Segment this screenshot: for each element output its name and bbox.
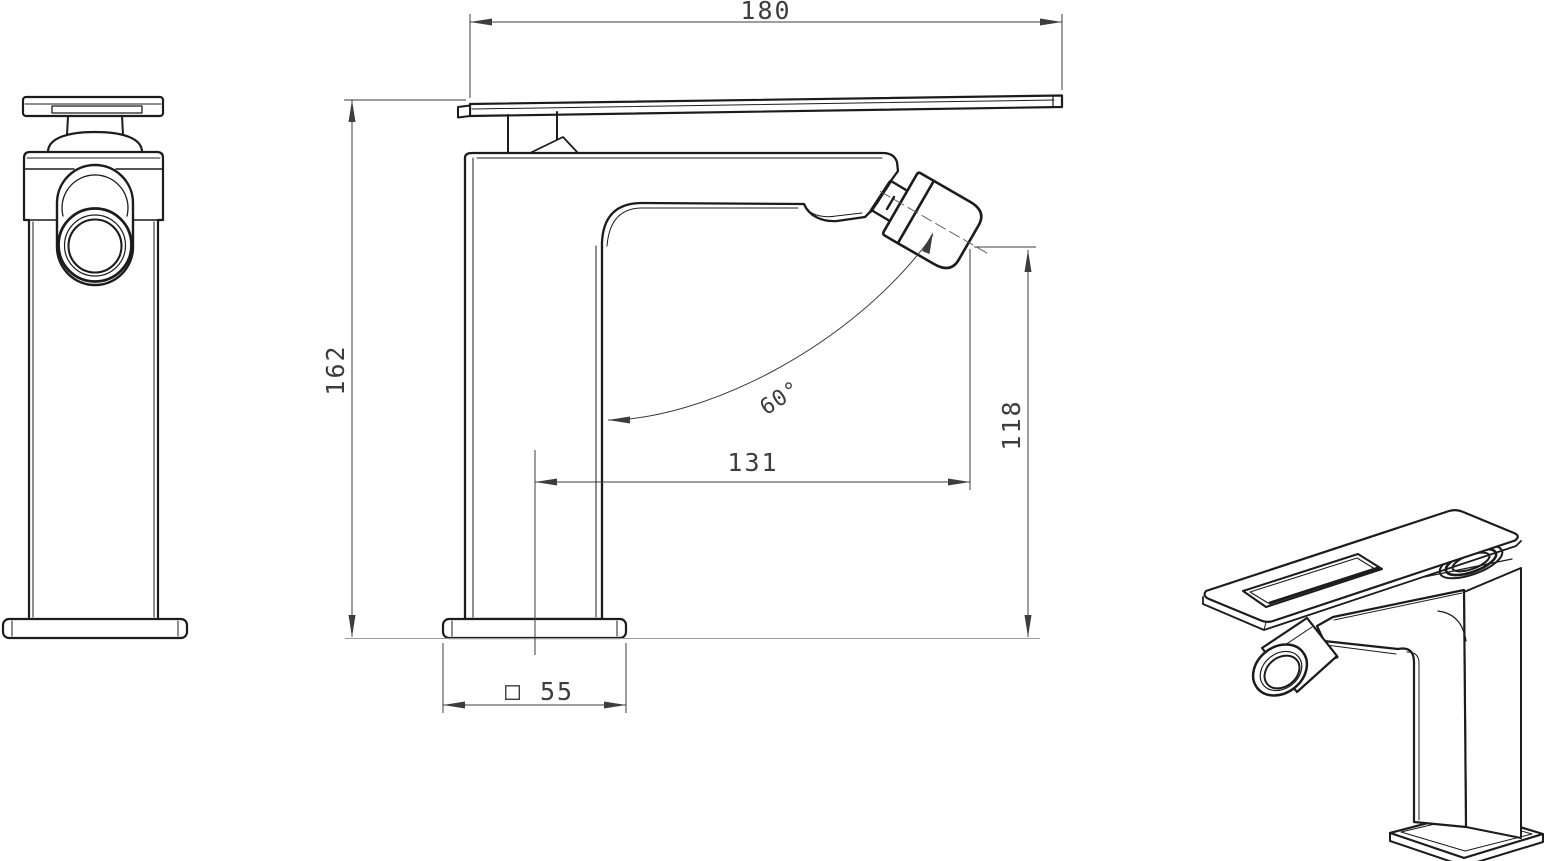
side-view bbox=[443, 96, 1062, 639]
dimension-text-131: 131 bbox=[727, 448, 778, 477]
dimension-arrow bbox=[948, 479, 970, 486]
front-view bbox=[3, 97, 187, 638]
dimension-text-55: 55 bbox=[540, 677, 574, 706]
side-handle-end-cap bbox=[458, 106, 470, 118]
angle-arrow-horizontal bbox=[608, 417, 630, 424]
dimension-arrow bbox=[1025, 615, 1032, 637]
dimension-60deg: 60° bbox=[608, 232, 933, 424]
technical-drawing: 180 162 131 118 bbox=[0, 0, 1550, 861]
square-symbol: □ bbox=[505, 676, 522, 705]
side-stem bbox=[508, 112, 557, 153]
dimension-arrow bbox=[1025, 250, 1032, 272]
dimension-118: 118 bbox=[974, 247, 1036, 637]
side-gusset bbox=[530, 137, 578, 153]
front-dome bbox=[48, 132, 142, 152]
side-body-outline bbox=[465, 153, 898, 619]
dimension-arrow bbox=[443, 702, 465, 709]
dimension-arrow bbox=[1040, 19, 1062, 26]
dimension-180: 180 bbox=[470, 0, 1062, 98]
dimension-arrow bbox=[349, 615, 356, 637]
persp-body-front-face bbox=[1317, 590, 1466, 827]
dimension-text-180: 180 bbox=[740, 0, 791, 25]
drawing-sheet: 180 162 131 118 bbox=[0, 0, 1550, 861]
persp-column-right-face bbox=[1464, 568, 1521, 838]
side-handle-lever bbox=[470, 96, 1062, 117]
dimension-arrow bbox=[349, 100, 356, 122]
side-aerator-body bbox=[882, 172, 986, 274]
front-spout-silhouette bbox=[57, 165, 133, 285]
dimension-arrow bbox=[604, 702, 626, 709]
dimension-text-118: 118 bbox=[997, 399, 1026, 450]
front-base bbox=[3, 619, 187, 638]
perspective-view bbox=[1203, 510, 1543, 861]
dimension-arrow bbox=[470, 19, 492, 26]
dimension-text-162: 162 bbox=[321, 344, 350, 395]
dimension-text-60: 60° bbox=[756, 376, 805, 420]
dimension-162: 162 bbox=[321, 100, 466, 637]
